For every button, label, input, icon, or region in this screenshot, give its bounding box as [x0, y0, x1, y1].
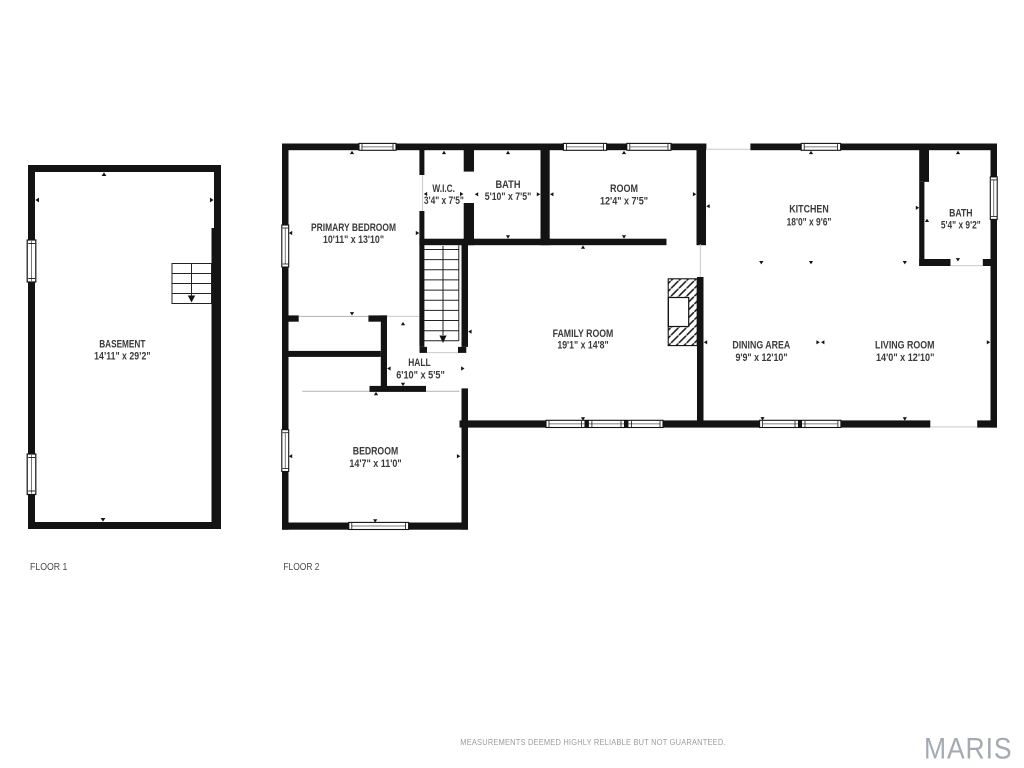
svg-text:LIVING ROOM: LIVING ROOM [875, 340, 935, 352]
svg-text:ROOM: ROOM [610, 183, 638, 195]
svg-text:19'1" x 14'8": 19'1" x 14'8" [557, 340, 608, 352]
svg-text:5'4" x 9'2": 5'4" x 9'2" [941, 219, 981, 231]
svg-text:9'9" x 12'10": 9'9" x 12'10" [735, 352, 787, 364]
svg-text:14'0" x 12'10": 14'0" x 12'10" [876, 352, 934, 364]
svg-text:3'4" x 7'5": 3'4" x 7'5" [424, 195, 464, 207]
svg-text:FLOOR 2: FLOOR 2 [283, 561, 319, 573]
svg-text:BASEMENT: BASEMENT [99, 339, 145, 351]
svg-text:PRIMARY BEDROOM: PRIMARY BEDROOM [311, 222, 396, 234]
svg-text:KITCHEN: KITCHEN [789, 204, 829, 216]
svg-text:FAMILY ROOM: FAMILY ROOM [553, 328, 614, 340]
svg-text:MARIS: MARIS [924, 732, 1012, 765]
svg-text:FLOOR 1: FLOOR 1 [30, 561, 68, 573]
svg-text:12'4" x 7'5": 12'4" x 7'5" [600, 196, 648, 208]
svg-text:MEASUREMENTS DEEMED HIGHLY REL: MEASUREMENTS DEEMED HIGHLY RELIABLE BUT … [460, 737, 725, 747]
svg-text:BATH: BATH [496, 179, 521, 191]
svg-text:14'7" x 11'0": 14'7" x 11'0" [349, 458, 401, 470]
svg-text:5'10" x 7'5": 5'10" x 7'5" [485, 191, 532, 203]
svg-text:DINING AREA: DINING AREA [732, 340, 790, 352]
svg-text:10'11" x 13'10": 10'11" x 13'10" [323, 234, 384, 246]
svg-text:18'0" x 9'6": 18'0" x 9'6" [787, 216, 832, 228]
svg-text:BATH: BATH [949, 208, 972, 220]
svg-text:14’11" x 29’2": 14’11" x 29’2" [94, 351, 150, 363]
svg-text:BEDROOM: BEDROOM [353, 446, 398, 458]
svg-text:HALL: HALL [408, 357, 431, 369]
svg-text:6'10" x 5'5": 6'10" x 5'5" [396, 370, 445, 382]
svg-text:W.I.C.: W.I.C. [432, 183, 455, 195]
